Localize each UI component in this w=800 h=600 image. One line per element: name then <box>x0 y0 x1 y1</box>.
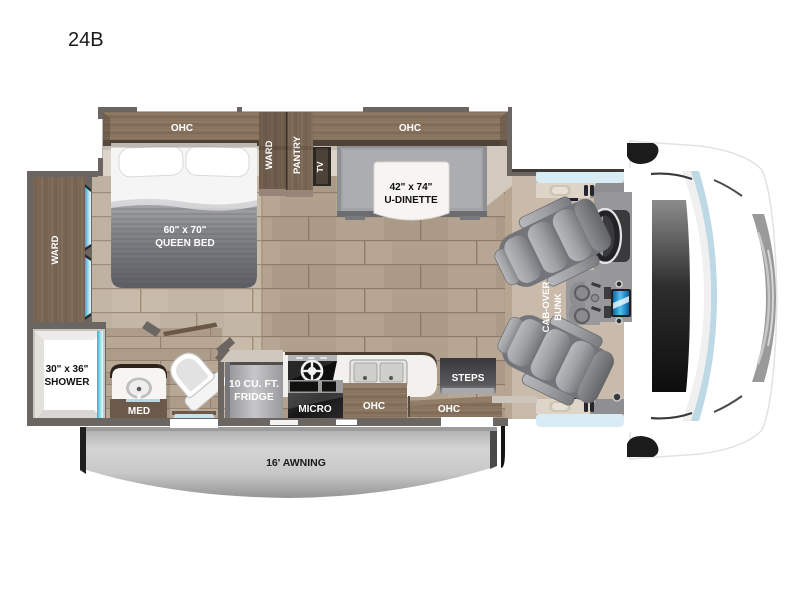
svg-text:CAB-OVER: CAB-OVER <box>541 282 552 333</box>
svg-text:OHC: OHC <box>399 123 421 134</box>
svg-text:60" x 70": 60" x 70" <box>164 225 207 236</box>
svg-text:STEPS: STEPS <box>452 373 485 384</box>
svg-text:TV: TV <box>315 161 325 172</box>
svg-text:OHC: OHC <box>171 123 193 134</box>
svg-text:FRIDGE: FRIDGE <box>234 391 274 403</box>
svg-text:U-DINETTE: U-DINETTE <box>384 195 438 206</box>
svg-text:OHC: OHC <box>363 401 385 412</box>
svg-text:16' AWNING: 16' AWNING <box>266 457 326 469</box>
svg-text:MED: MED <box>128 406 150 417</box>
svg-text:QUEEN BED: QUEEN BED <box>155 238 214 249</box>
svg-text:WARD: WARD <box>50 235 61 264</box>
svg-text:24B: 24B <box>68 29 104 51</box>
svg-text:PANTRY: PANTRY <box>292 135 303 174</box>
svg-text:42" x 74": 42" x 74" <box>390 182 433 193</box>
svg-text:SHOWER: SHOWER <box>45 377 91 388</box>
svg-text:OHC: OHC <box>438 404 460 415</box>
svg-text:30" x 36": 30" x 36" <box>46 364 89 375</box>
svg-text:10 CU. FT.: 10 CU. FT. <box>229 378 279 390</box>
svg-text:WARD: WARD <box>264 140 275 169</box>
svg-text:BUNK: BUNK <box>553 293 564 321</box>
svg-text:MICRO: MICRO <box>298 404 332 415</box>
